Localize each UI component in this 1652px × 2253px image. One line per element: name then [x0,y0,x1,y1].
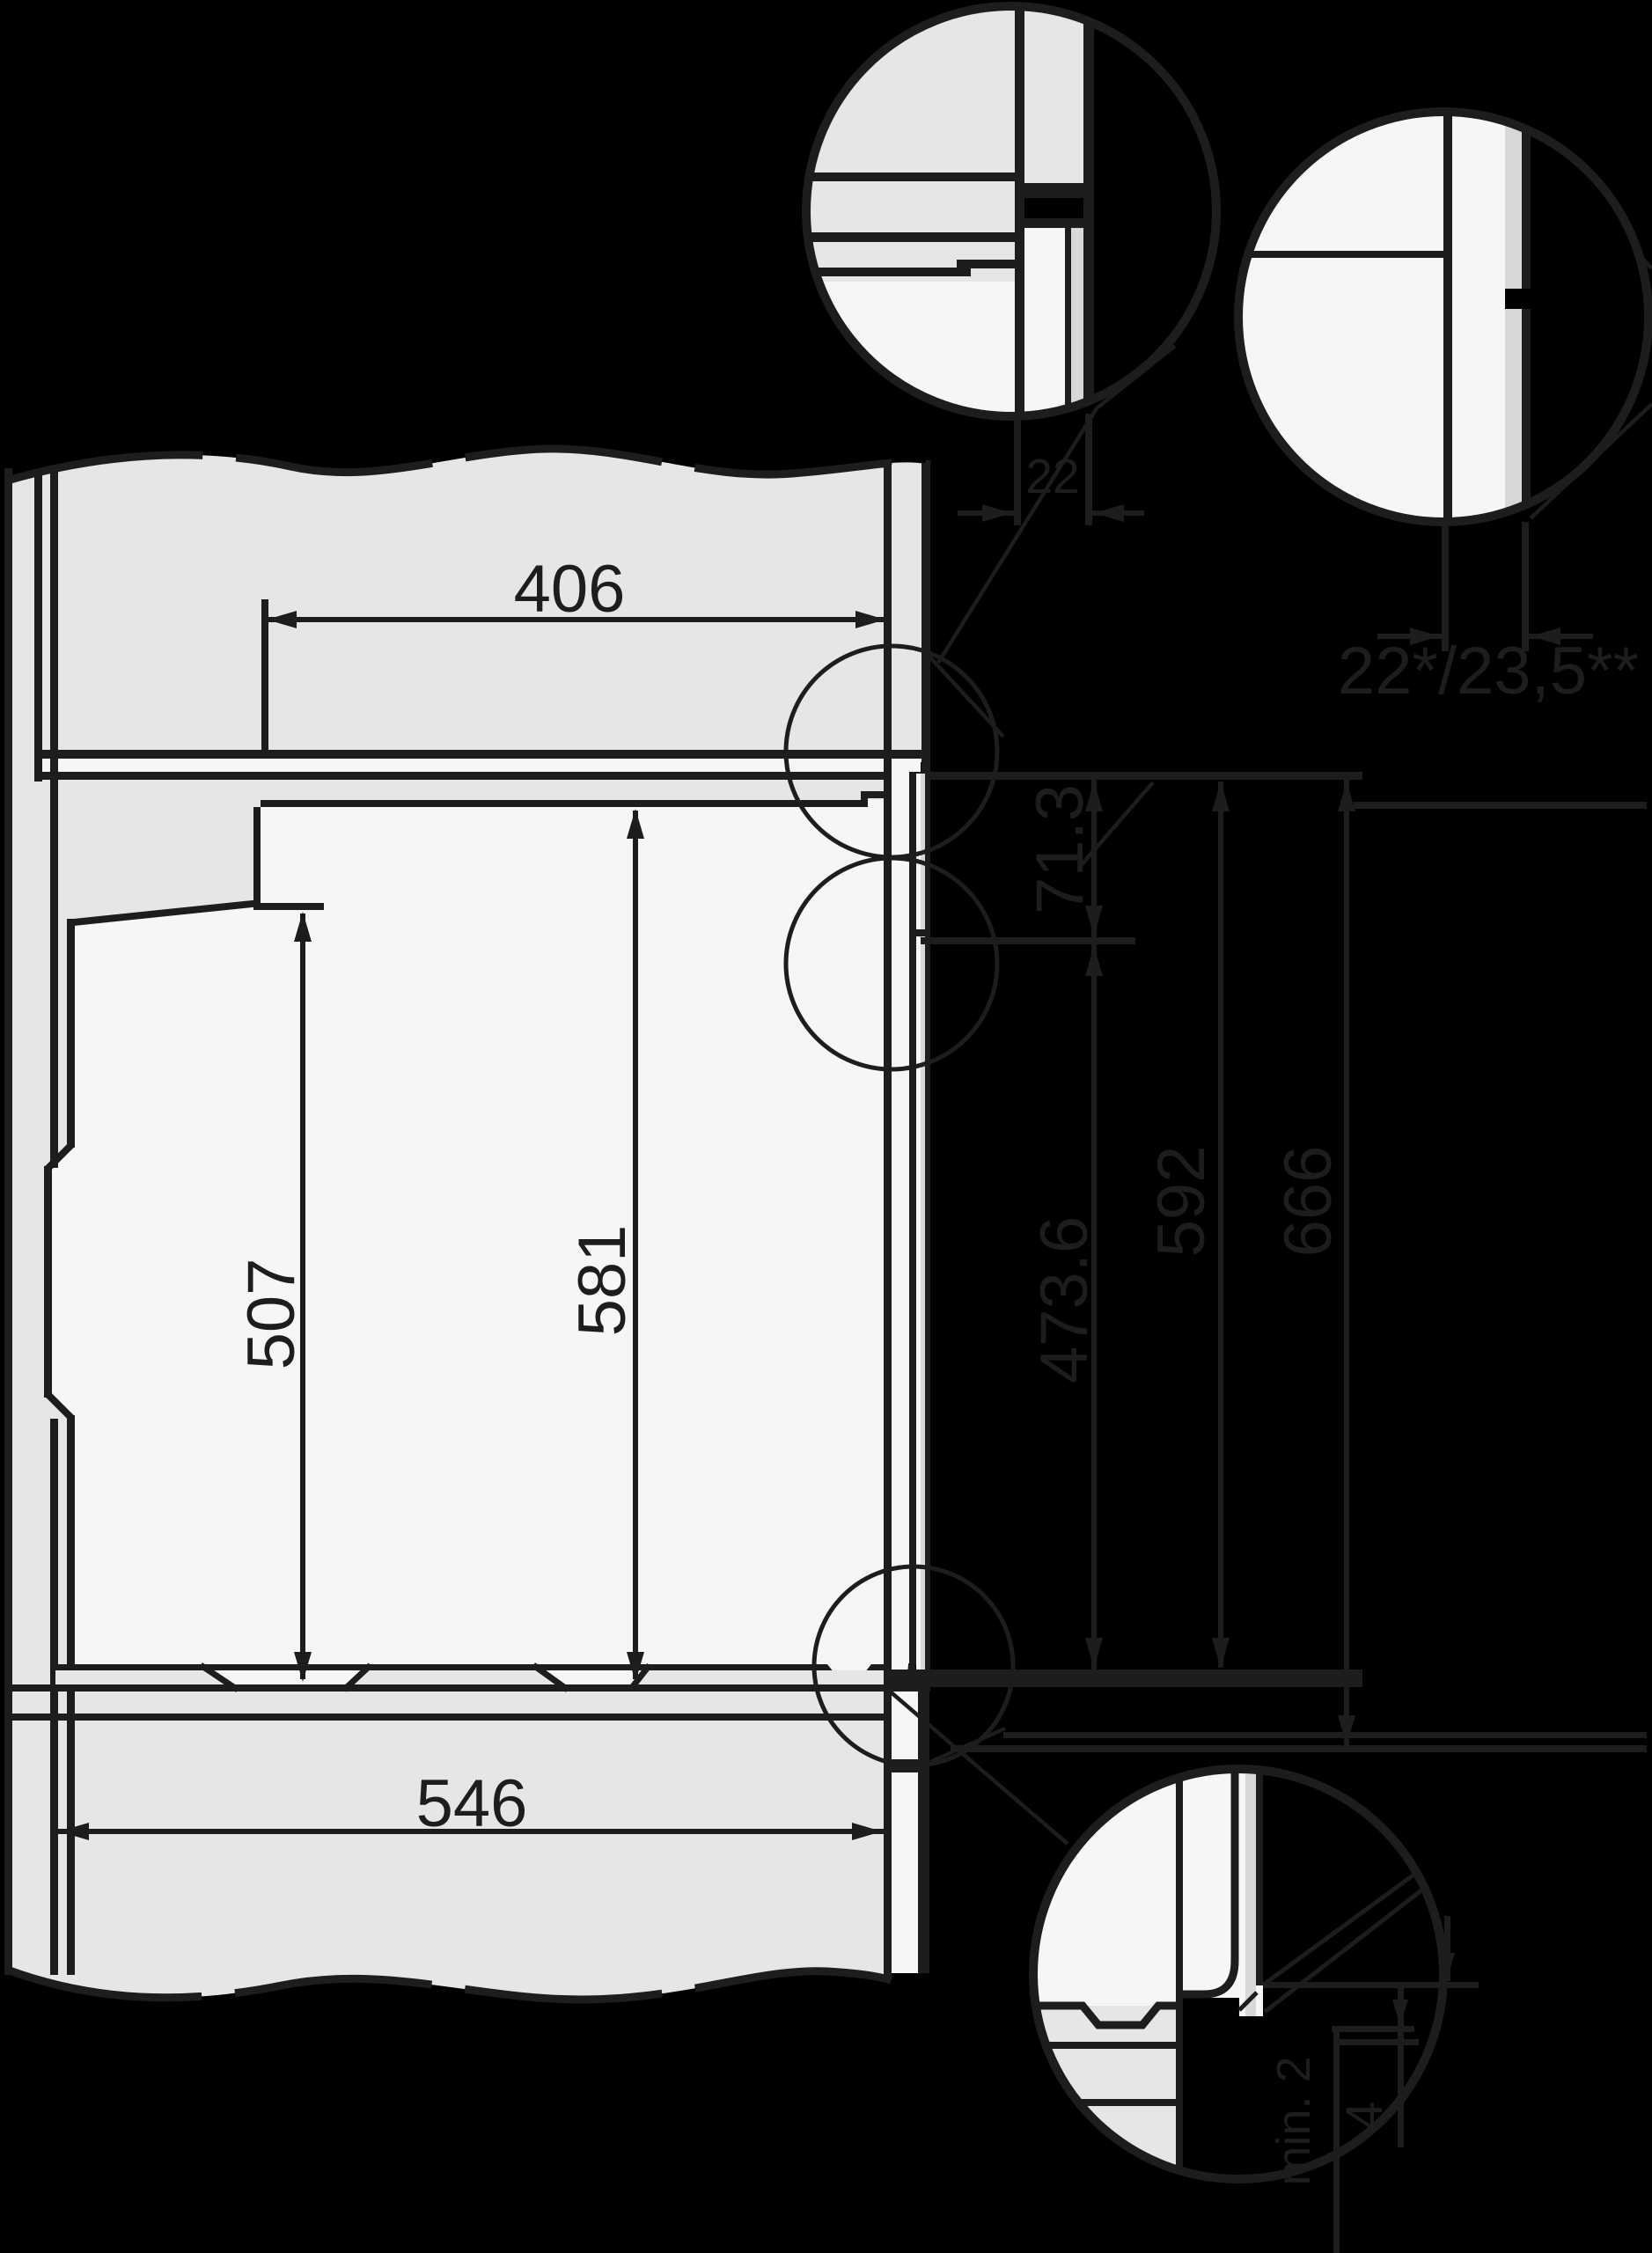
svg-text:406: 406 [514,552,626,627]
svg-text:4: 4 [1336,2102,1393,2130]
svg-text:71.3: 71.3 [1023,784,1098,914]
svg-text:592: 592 [1144,1146,1219,1258]
svg-text:473.6: 473.6 [1027,1216,1102,1383]
svg-text:666: 666 [1271,1146,1346,1258]
svg-text:min. 2: min. 2 [1267,2056,1320,2185]
svg-text:22: 22 [1025,449,1079,503]
svg-text:546: 546 [416,1766,528,1841]
svg-text:581: 581 [565,1225,640,1337]
svg-text:507: 507 [234,1259,309,1370]
svg-text:22*/23,5**: 22*/23,5** [1338,634,1639,708]
